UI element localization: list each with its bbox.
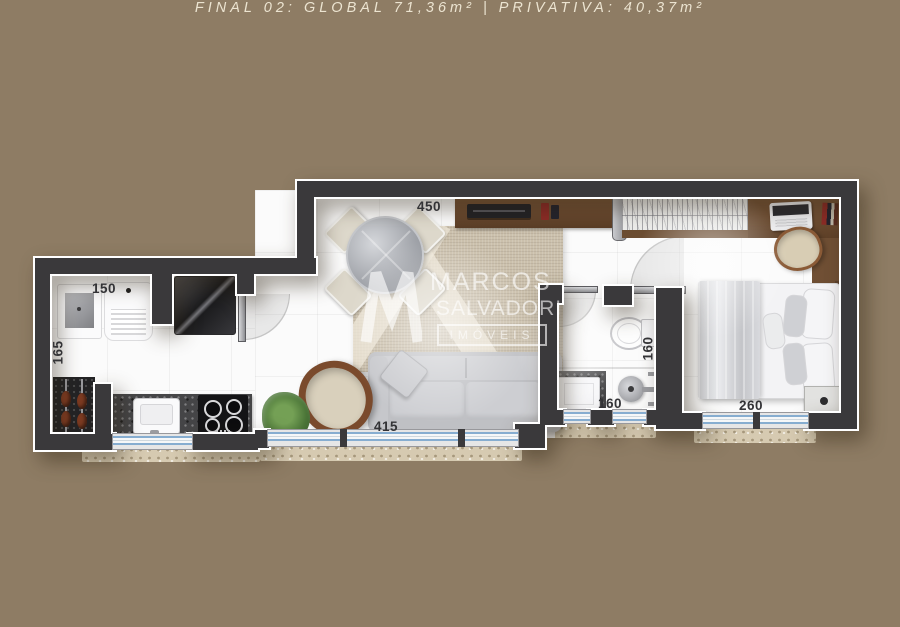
unit-area-caption: FINAL 02: GLOBAL 71,36m² | PRIVATIVA: 40… — [0, 0, 900, 16]
dim-living-top: 450 — [417, 199, 441, 214]
floor-plan-image: 450 150 165 415 160 160 260 MARCOS SALVA… — [0, 0, 900, 627]
brand-watermark: MARCOS SALVADORI IMÓVEIS — [360, 260, 580, 370]
brand-tagline: IMÓVEIS — [437, 324, 547, 346]
brand-m-logo-icon — [360, 268, 422, 346]
dim-service-width: 150 — [92, 281, 116, 296]
dim-service-depth: 165 — [51, 336, 66, 370]
dim-bath-depth: 160 — [641, 332, 656, 366]
dim-bath-width: 160 — [598, 396, 622, 411]
dim-bedroom-width: 260 — [739, 398, 763, 413]
dim-living-bottom: 415 — [374, 419, 398, 434]
brand-name-top: MARCOS — [430, 268, 552, 297]
brand-name-bottom: SALVADORI — [436, 297, 562, 321]
